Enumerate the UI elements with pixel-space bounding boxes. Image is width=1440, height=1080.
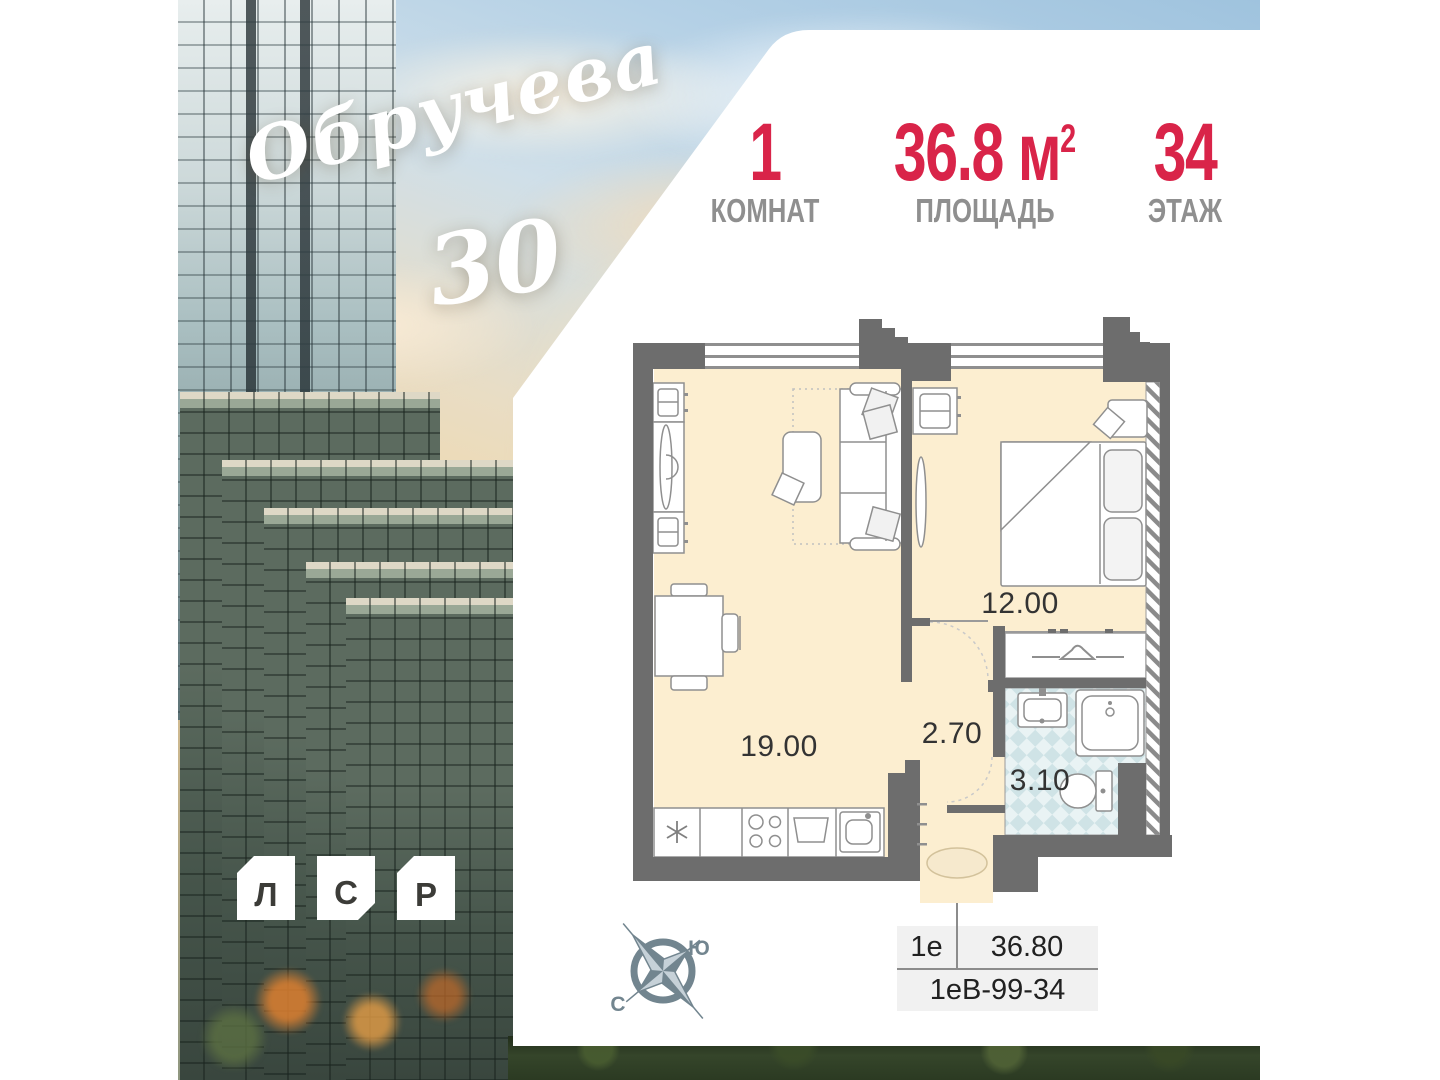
kitchen-counter — [654, 808, 884, 857]
logo-letter: Р — [415, 876, 437, 914]
room-label-living: 19.00 — [740, 730, 818, 763]
mirror-icon — [916, 457, 926, 547]
project-number: 30 — [420, 196, 570, 329]
logo-tile: Р — [397, 856, 455, 920]
total-area-cell: 36.80 — [956, 926, 1098, 968]
shower-icon — [1076, 690, 1144, 756]
floor-value: 34 — [1077, 114, 1293, 192]
layout-type-cell: 1е — [897, 926, 956, 968]
floor-label: ЭТАЖ — [1068, 194, 1302, 227]
entrance-rug — [927, 848, 987, 878]
logo-tile: С — [317, 856, 375, 920]
room-label-hallway: 2.70 — [922, 717, 982, 750]
stat-floor: 34 ЭТАЖ — [1035, 114, 1335, 227]
logo-letter: С — [334, 874, 358, 912]
window-reflections — [198, 955, 498, 1070]
compass-north-label: С — [610, 993, 625, 1016]
room-label-bathroom: 3.10 — [1010, 764, 1070, 797]
wardrobe-icon — [913, 388, 961, 434]
wardrobe-icon — [653, 383, 688, 422]
developer-logo: Л С Р — [237, 856, 467, 922]
logo-letter: Л — [254, 876, 277, 914]
unit-info-table: 1е 36.80 1еВ-99-34 — [897, 926, 1098, 1011]
logo-tile: Л — [237, 856, 295, 920]
hatched-wall — [1146, 382, 1160, 835]
hanger-closet — [1005, 633, 1146, 678]
bed — [1001, 442, 1146, 586]
wardrobe-icon — [653, 512, 688, 553]
bath-sink-icon — [1018, 688, 1067, 727]
compass-icon: Ю С — [595, 912, 735, 1032]
console-mirror-icon — [653, 422, 684, 512]
floor-plan: 19.00 12.00 2.70 3.10 — [560, 300, 1200, 940]
apartment-card: Обручева 30 1 КОМНАТ 36.8 м2 ПЛОЩАДЬ 34 … — [0, 0, 1440, 1080]
trees-band — [508, 1036, 1260, 1080]
plan-pointer-line — [956, 903, 958, 970]
room-label-bedroom: 12.00 — [981, 587, 1059, 620]
basin-icon — [794, 818, 828, 842]
unit-code-cell: 1еВ-99-34 — [897, 970, 1098, 1011]
compass-south-label: Ю — [688, 937, 710, 960]
sofa — [840, 383, 903, 550]
sink-icon — [840, 812, 880, 852]
table-row: 1е 36.80 — [897, 926, 1098, 970]
